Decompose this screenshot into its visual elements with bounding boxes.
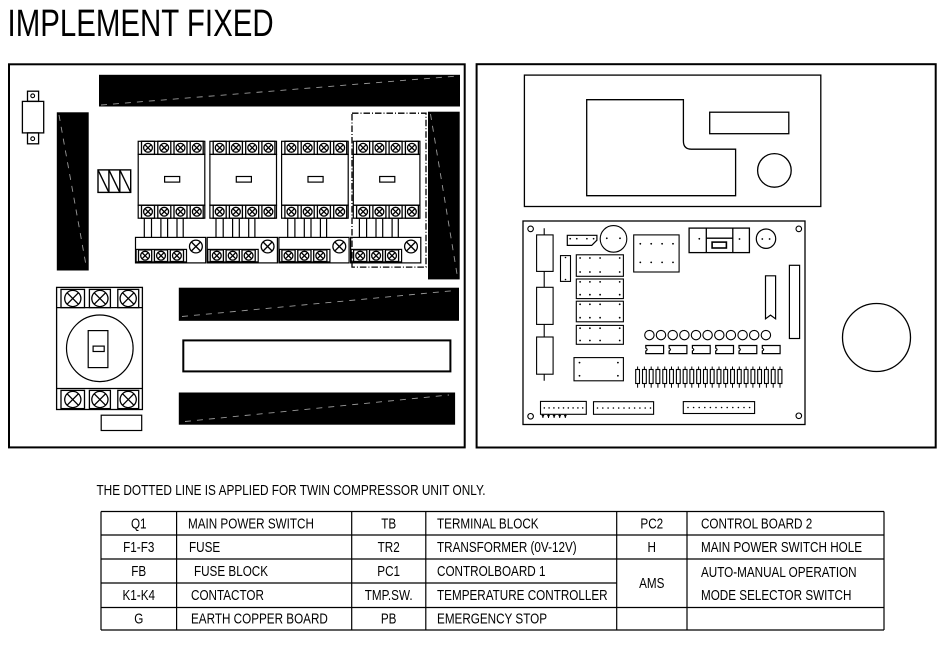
svg-text:TEMPERATURE CONTROLLER: TEMPERATURE CONTROLLER [437,586,608,603]
svg-text:MAIN POWER SWITCH HOLE: MAIN POWER SWITCH HOLE [701,538,862,555]
svg-text:G: G [134,610,143,627]
svg-text:TRANSFORMER (0V-12V): TRANSFORMER (0V-12V) [437,538,577,555]
svg-text:CONTROLBOARD 1: CONTROLBOARD 1 [437,562,545,579]
svg-text:TERMINAL BLOCK: TERMINAL BLOCK [437,515,539,532]
svg-text:EARTH COPPER BOARD: EARTH COPPER BOARD [191,610,328,627]
svg-text:FUSE: FUSE [189,538,220,555]
svg-text:IMPLEMENT FIXED: IMPLEMENT FIXED [8,2,274,44]
svg-text:PC1: PC1 [377,562,400,579]
svg-text:PB: PB [381,610,397,627]
svg-text:AMS: AMS [639,575,664,592]
svg-text:MODE SELECTOR SWITCH: MODE SELECTOR SWITCH [701,587,851,604]
svg-text:FB: FB [131,562,146,579]
svg-text:K1-K4: K1-K4 [123,586,156,603]
svg-text:MAIN POWER SWITCH: MAIN POWER SWITCH [188,515,314,532]
svg-text:TMP.SW.: TMP.SW. [365,586,413,603]
svg-text:F1-F3: F1-F3 [123,538,154,555]
svg-text:TB: TB [381,515,396,532]
svg-text:H: H [648,538,656,555]
svg-text:CONTROL BOARD 2: CONTROL BOARD 2 [701,515,812,532]
svg-text:Q1: Q1 [131,515,147,532]
svg-text:TR2: TR2 [378,538,400,555]
svg-text:THE DOTTED LINE IS APPLIED FOR: THE DOTTED LINE IS APPLIED FOR TWIN COMP… [96,482,485,499]
svg-text:CONTACTOR: CONTACTOR [191,586,264,603]
svg-text:EMERGENCY STOP: EMERGENCY STOP [437,610,547,627]
svg-text:PC2: PC2 [640,515,663,532]
svg-text:FUSE BLOCK: FUSE BLOCK [194,562,268,579]
svg-text:AUTO-MANUAL OPERATION: AUTO-MANUAL OPERATION [701,564,857,581]
